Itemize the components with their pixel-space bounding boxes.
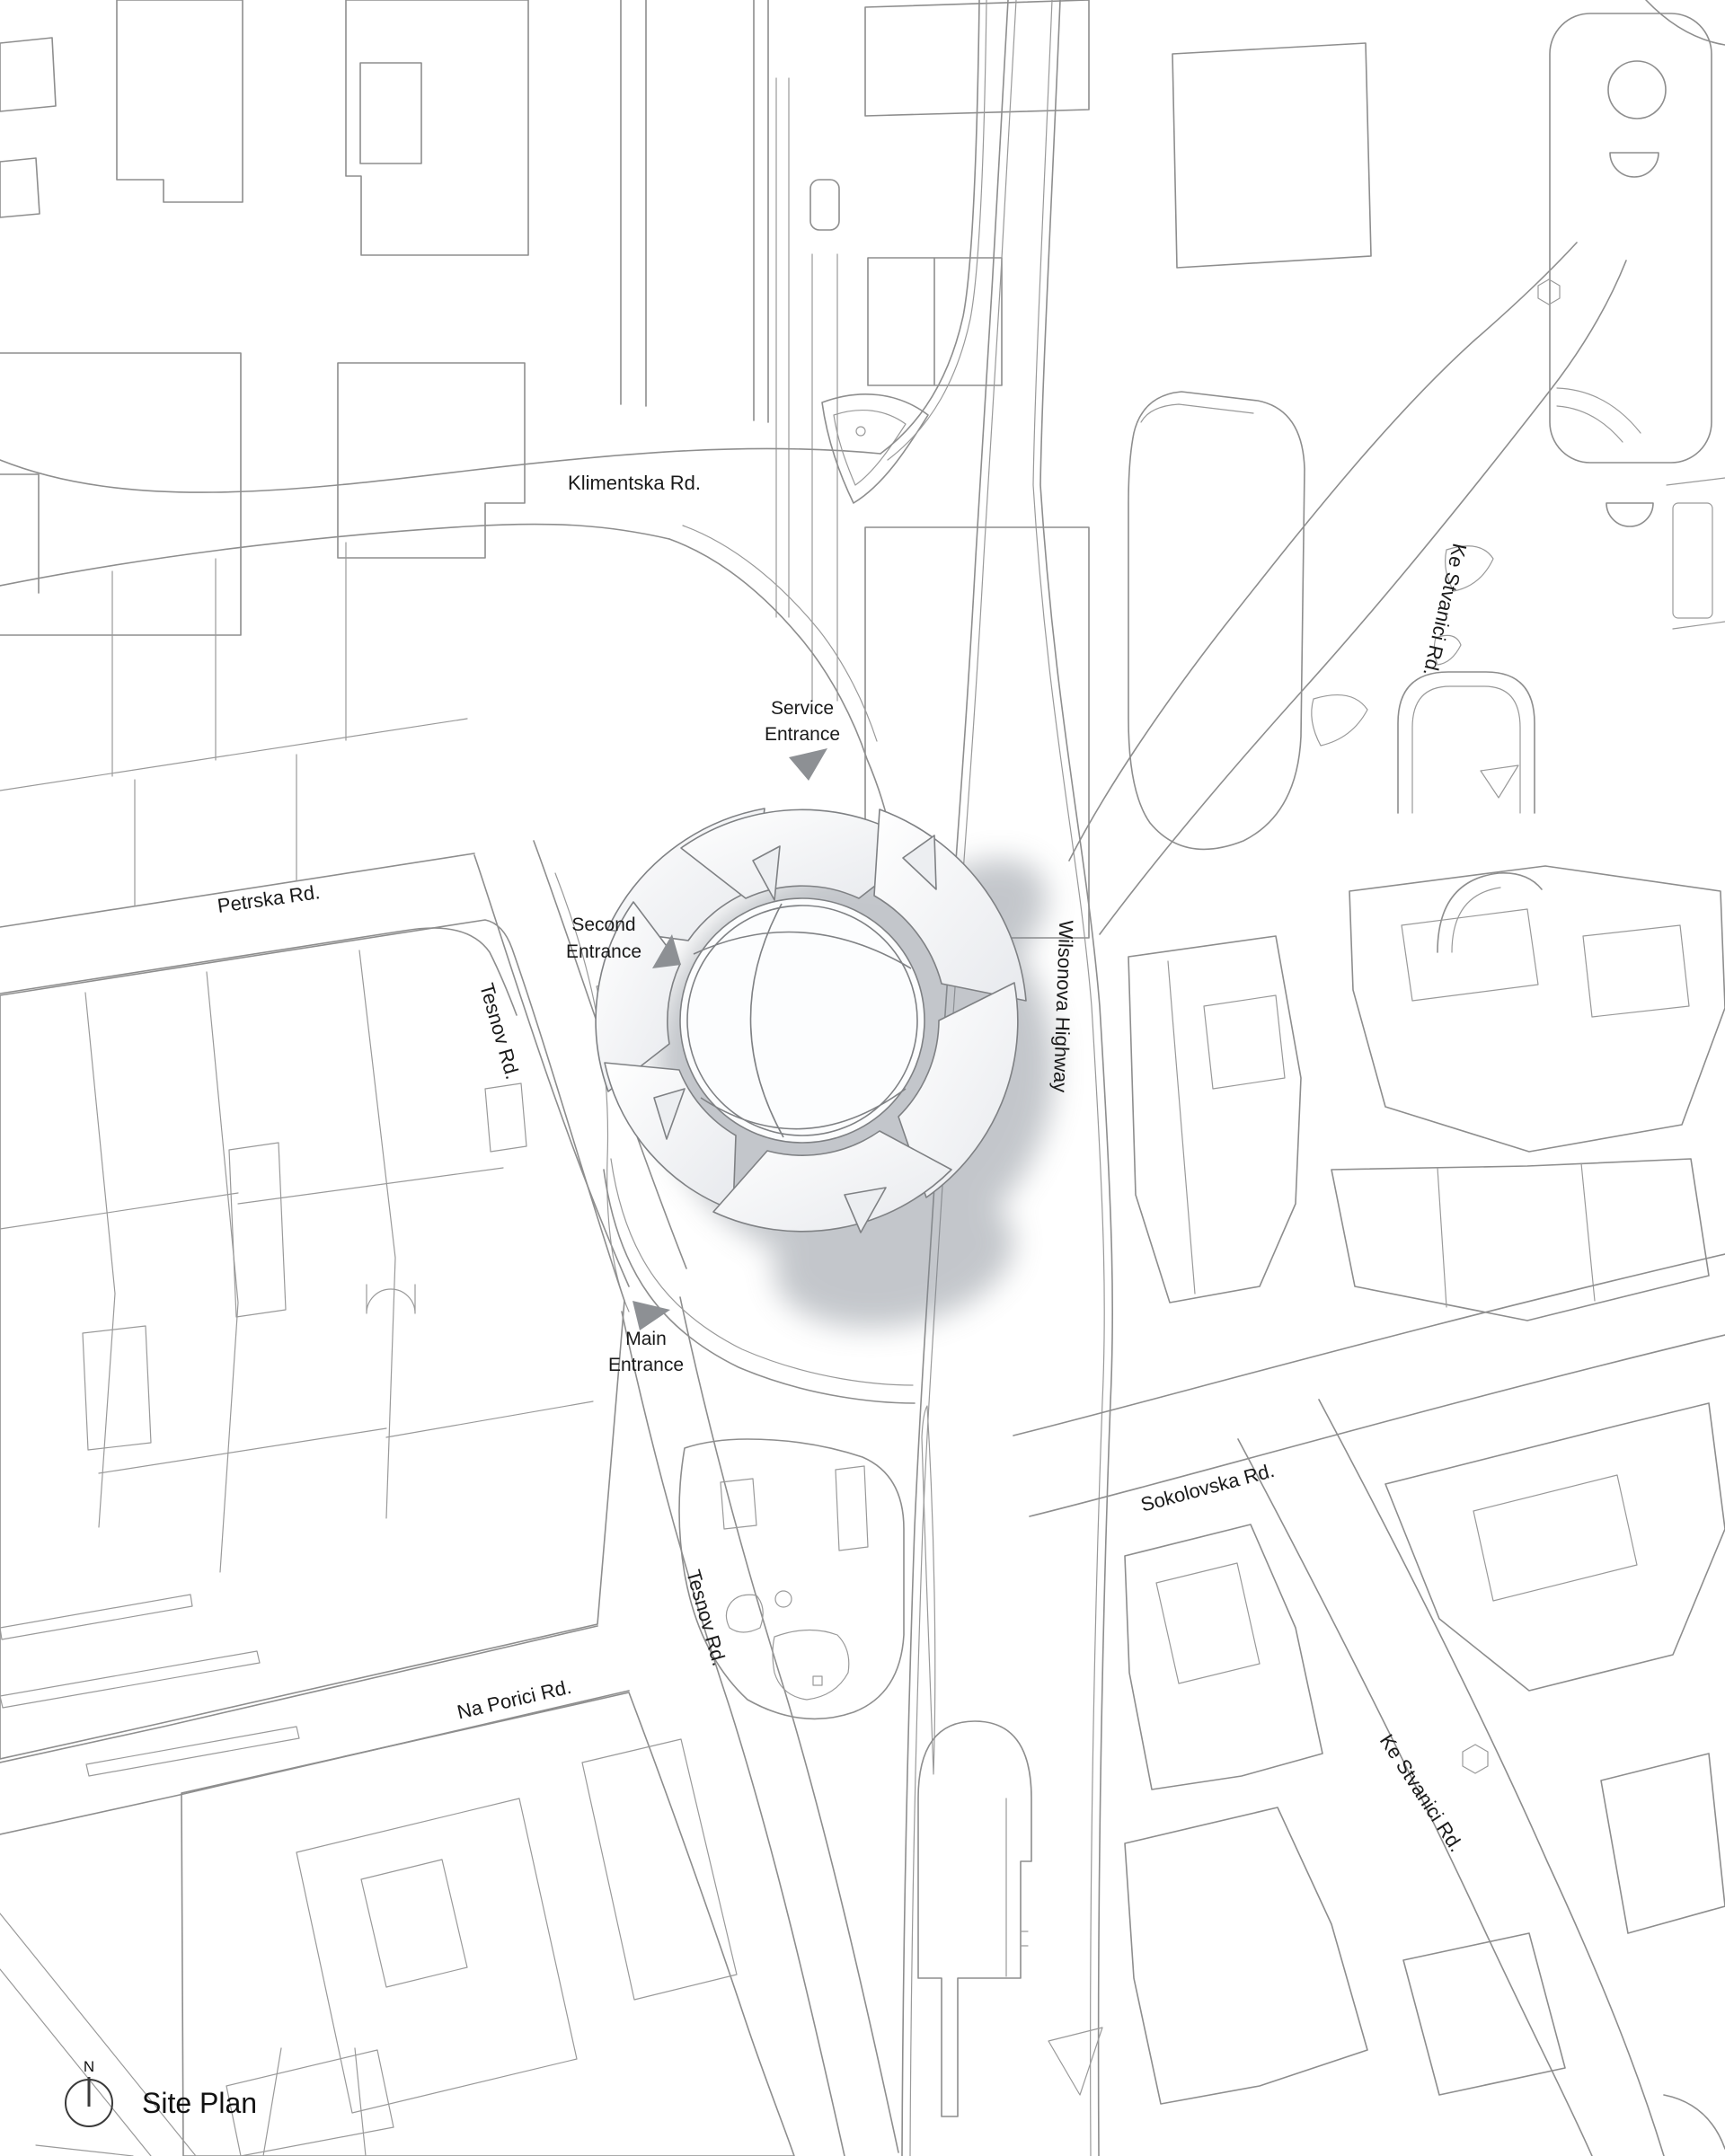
park-feature-circle (1608, 61, 1666, 119)
corner-curve (1664, 2095, 1725, 2149)
traffic-island-inner (834, 411, 906, 485)
parcel-lane (0, 719, 467, 791)
corner-curve (1646, 0, 1725, 45)
city-block (0, 353, 241, 635)
city-block (117, 0, 243, 202)
city-block-cluster (181, 1692, 794, 2156)
klimentska-road-north-edge (0, 448, 880, 492)
city-building (1402, 909, 1689, 1017)
parcel-line (85, 950, 395, 1572)
city-block (346, 0, 528, 255)
park-pond-small (775, 1591, 792, 1607)
tesnov-lower-west-edge (622, 1312, 845, 2156)
city-building (83, 1083, 526, 1450)
traffic-dot-hexagon (1463, 1745, 1488, 1773)
edge-strip (1673, 503, 1712, 618)
main-entrance-label-line1: Main (625, 1329, 667, 1349)
petrska-north-edge (0, 853, 474, 927)
street-label-ke-stvanici-bottom: Ke Stvanici Rd. (1376, 1730, 1468, 1856)
city-block-cluster (0, 920, 624, 1759)
building-central-dome (680, 898, 924, 1143)
city-building (1204, 995, 1285, 1089)
parcel-line (1437, 1163, 1595, 1307)
park-paths (1557, 388, 1641, 442)
service-entrance-label-line1: Service (771, 698, 834, 719)
city-building (226, 1739, 737, 2156)
klimentska-road-south-edge (0, 525, 669, 586)
traffic-dot-hexagon (1538, 279, 1560, 305)
small-structure (810, 180, 839, 230)
title-block: N Site Plan (66, 2058, 257, 2126)
city-block (868, 258, 1002, 385)
city-block (1601, 1754, 1725, 1933)
oval-ramp-loop (1128, 392, 1305, 849)
traffic-island (1048, 2028, 1102, 2095)
second-entrance-label-line1: Second (571, 915, 635, 935)
median-island (922, 1406, 935, 1774)
traffic-island (1481, 765, 1518, 798)
street-label-sokolovska: Sokolovska Rd. (1138, 1459, 1277, 1516)
street-label-na-porici: Na Porici Rd. (455, 1675, 573, 1724)
city-block (1385, 1403, 1725, 1691)
north-label: N (84, 2058, 94, 2075)
parcel-line (0, 1168, 593, 1473)
site-plan-page: Klimentska Rd. Ke Stvanici Rd. Petrska R… (0, 0, 1725, 2156)
city-building (1473, 1475, 1637, 1601)
tesnov-lower-east-edge (680, 1297, 898, 2152)
island-tree-dot (856, 427, 865, 436)
horseshoe-block (1398, 672, 1535, 813)
park-pond (773, 1630, 849, 1700)
street-label-tesnov-lower: Tesnov Rd. (682, 1568, 730, 1669)
park-building (721, 1466, 868, 1551)
edge-fragment (1667, 478, 1725, 629)
south-park-outline (679, 1439, 904, 1719)
second-entrance-label-line2: Entrance (566, 941, 641, 962)
corner-street (0, 1913, 196, 2156)
curved-block-inner (1452, 888, 1500, 952)
city-block (0, 38, 56, 217)
city-block (1403, 1933, 1565, 2095)
street-label-tesnov-upper: Tesnov Rd. (475, 981, 524, 1082)
city-block (1125, 1524, 1322, 1789)
park-block (1550, 13, 1712, 463)
site-north-road (669, 539, 895, 853)
city-block (1125, 1807, 1367, 2104)
city-block (1331, 1159, 1709, 1321)
station-inner-line (1006, 1798, 1028, 1976)
city-building (1156, 1563, 1260, 1683)
oval-ramp-inner (1141, 404, 1253, 422)
city-block (360, 63, 421, 163)
main-entrance-label-line2: Entrance (608, 1355, 684, 1375)
curved-block (1437, 873, 1542, 952)
service-entrance-label-line2: Entrance (765, 724, 840, 745)
alley-edges (621, 0, 768, 422)
parcel-line (112, 543, 346, 906)
arched-building-detail (367, 1285, 415, 1313)
plan-title: Site Plan (142, 2087, 257, 2119)
sokolovska-north-edge (1013, 1254, 1725, 1436)
street-label-ke-stvanici-top: Ke Stvanici Rd. (1419, 542, 1471, 678)
traffic-island (1312, 695, 1367, 746)
park-feature-halfdisc (1606, 503, 1653, 526)
site-plan-map: Klimentska Rd. Ke Stvanici Rd. Petrska R… (0, 0, 1725, 2156)
ke-stvanici-east-edge (1100, 261, 1626, 934)
main-entrance-marker-icon (632, 1301, 670, 1330)
parcel-line (1168, 961, 1195, 1294)
park-structure (813, 1676, 822, 1685)
train-station-building (918, 1721, 1031, 2116)
park-feature-halfdisc (1610, 153, 1659, 177)
traffic-island (822, 394, 928, 503)
city-block (1172, 43, 1371, 268)
city-block (1128, 936, 1301, 1303)
street-label-wilsonova: Wilsonova Highway (1049, 920, 1078, 1093)
horseshoe-block-inner (1412, 686, 1520, 813)
street-label-klimentska: Klimentska Rd. (568, 472, 701, 494)
petrska-south-edge (0, 928, 517, 1015)
service-entrance-marker-icon (789, 748, 827, 781)
rail-strip (776, 78, 837, 701)
